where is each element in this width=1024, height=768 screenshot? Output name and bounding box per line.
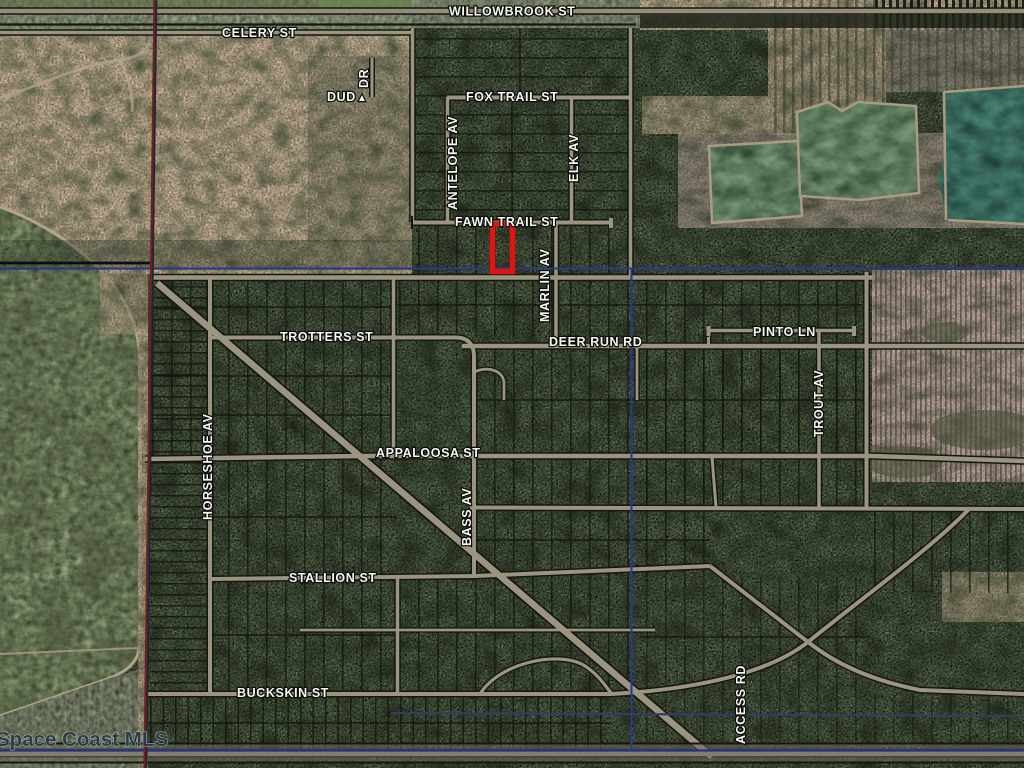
svg-text:STALLION ST: STALLION ST [289,571,377,585]
svg-text:DR: DR [357,69,371,88]
svg-text:WILLOWBROOK ST: WILLOWBROOK ST [449,5,575,19]
svg-text:ANTELOPE AV: ANTELOPE AV [446,116,460,210]
svg-text:▲: ▲ [357,93,368,104]
svg-text:FAWN TRAIL ST: FAWN TRAIL ST [455,215,558,229]
svg-text:FOX TRAIL ST: FOX TRAIL ST [466,90,558,104]
svg-text:TROTTERS ST: TROTTERS ST [280,330,373,344]
svg-text:CELERY ST: CELERY ST [222,26,297,40]
svg-text:ACCESS RD: ACCESS RD [734,665,748,744]
svg-text:BASS AV: BASS AV [460,488,474,546]
svg-text:Space Coast MLS: Space Coast MLS [0,728,168,751]
svg-text:HORSESHOE AV: HORSESHOE AV [201,413,215,520]
svg-text:PINTO LN: PINTO LN [753,325,816,339]
svg-text:ELK AV: ELK AV [567,134,581,182]
svg-text:APPALOOSA ST: APPALOOSA ST [376,446,480,460]
svg-text:DEER RUN RD: DEER RUN RD [549,335,642,349]
svg-text:BUCKSKIN ST: BUCKSKIN ST [237,686,329,700]
svg-text:MARLIN AV: MARLIN AV [538,248,552,322]
svg-text:DUD: DUD [327,90,356,104]
svg-text:TROUT AV: TROUT AV [812,370,826,437]
